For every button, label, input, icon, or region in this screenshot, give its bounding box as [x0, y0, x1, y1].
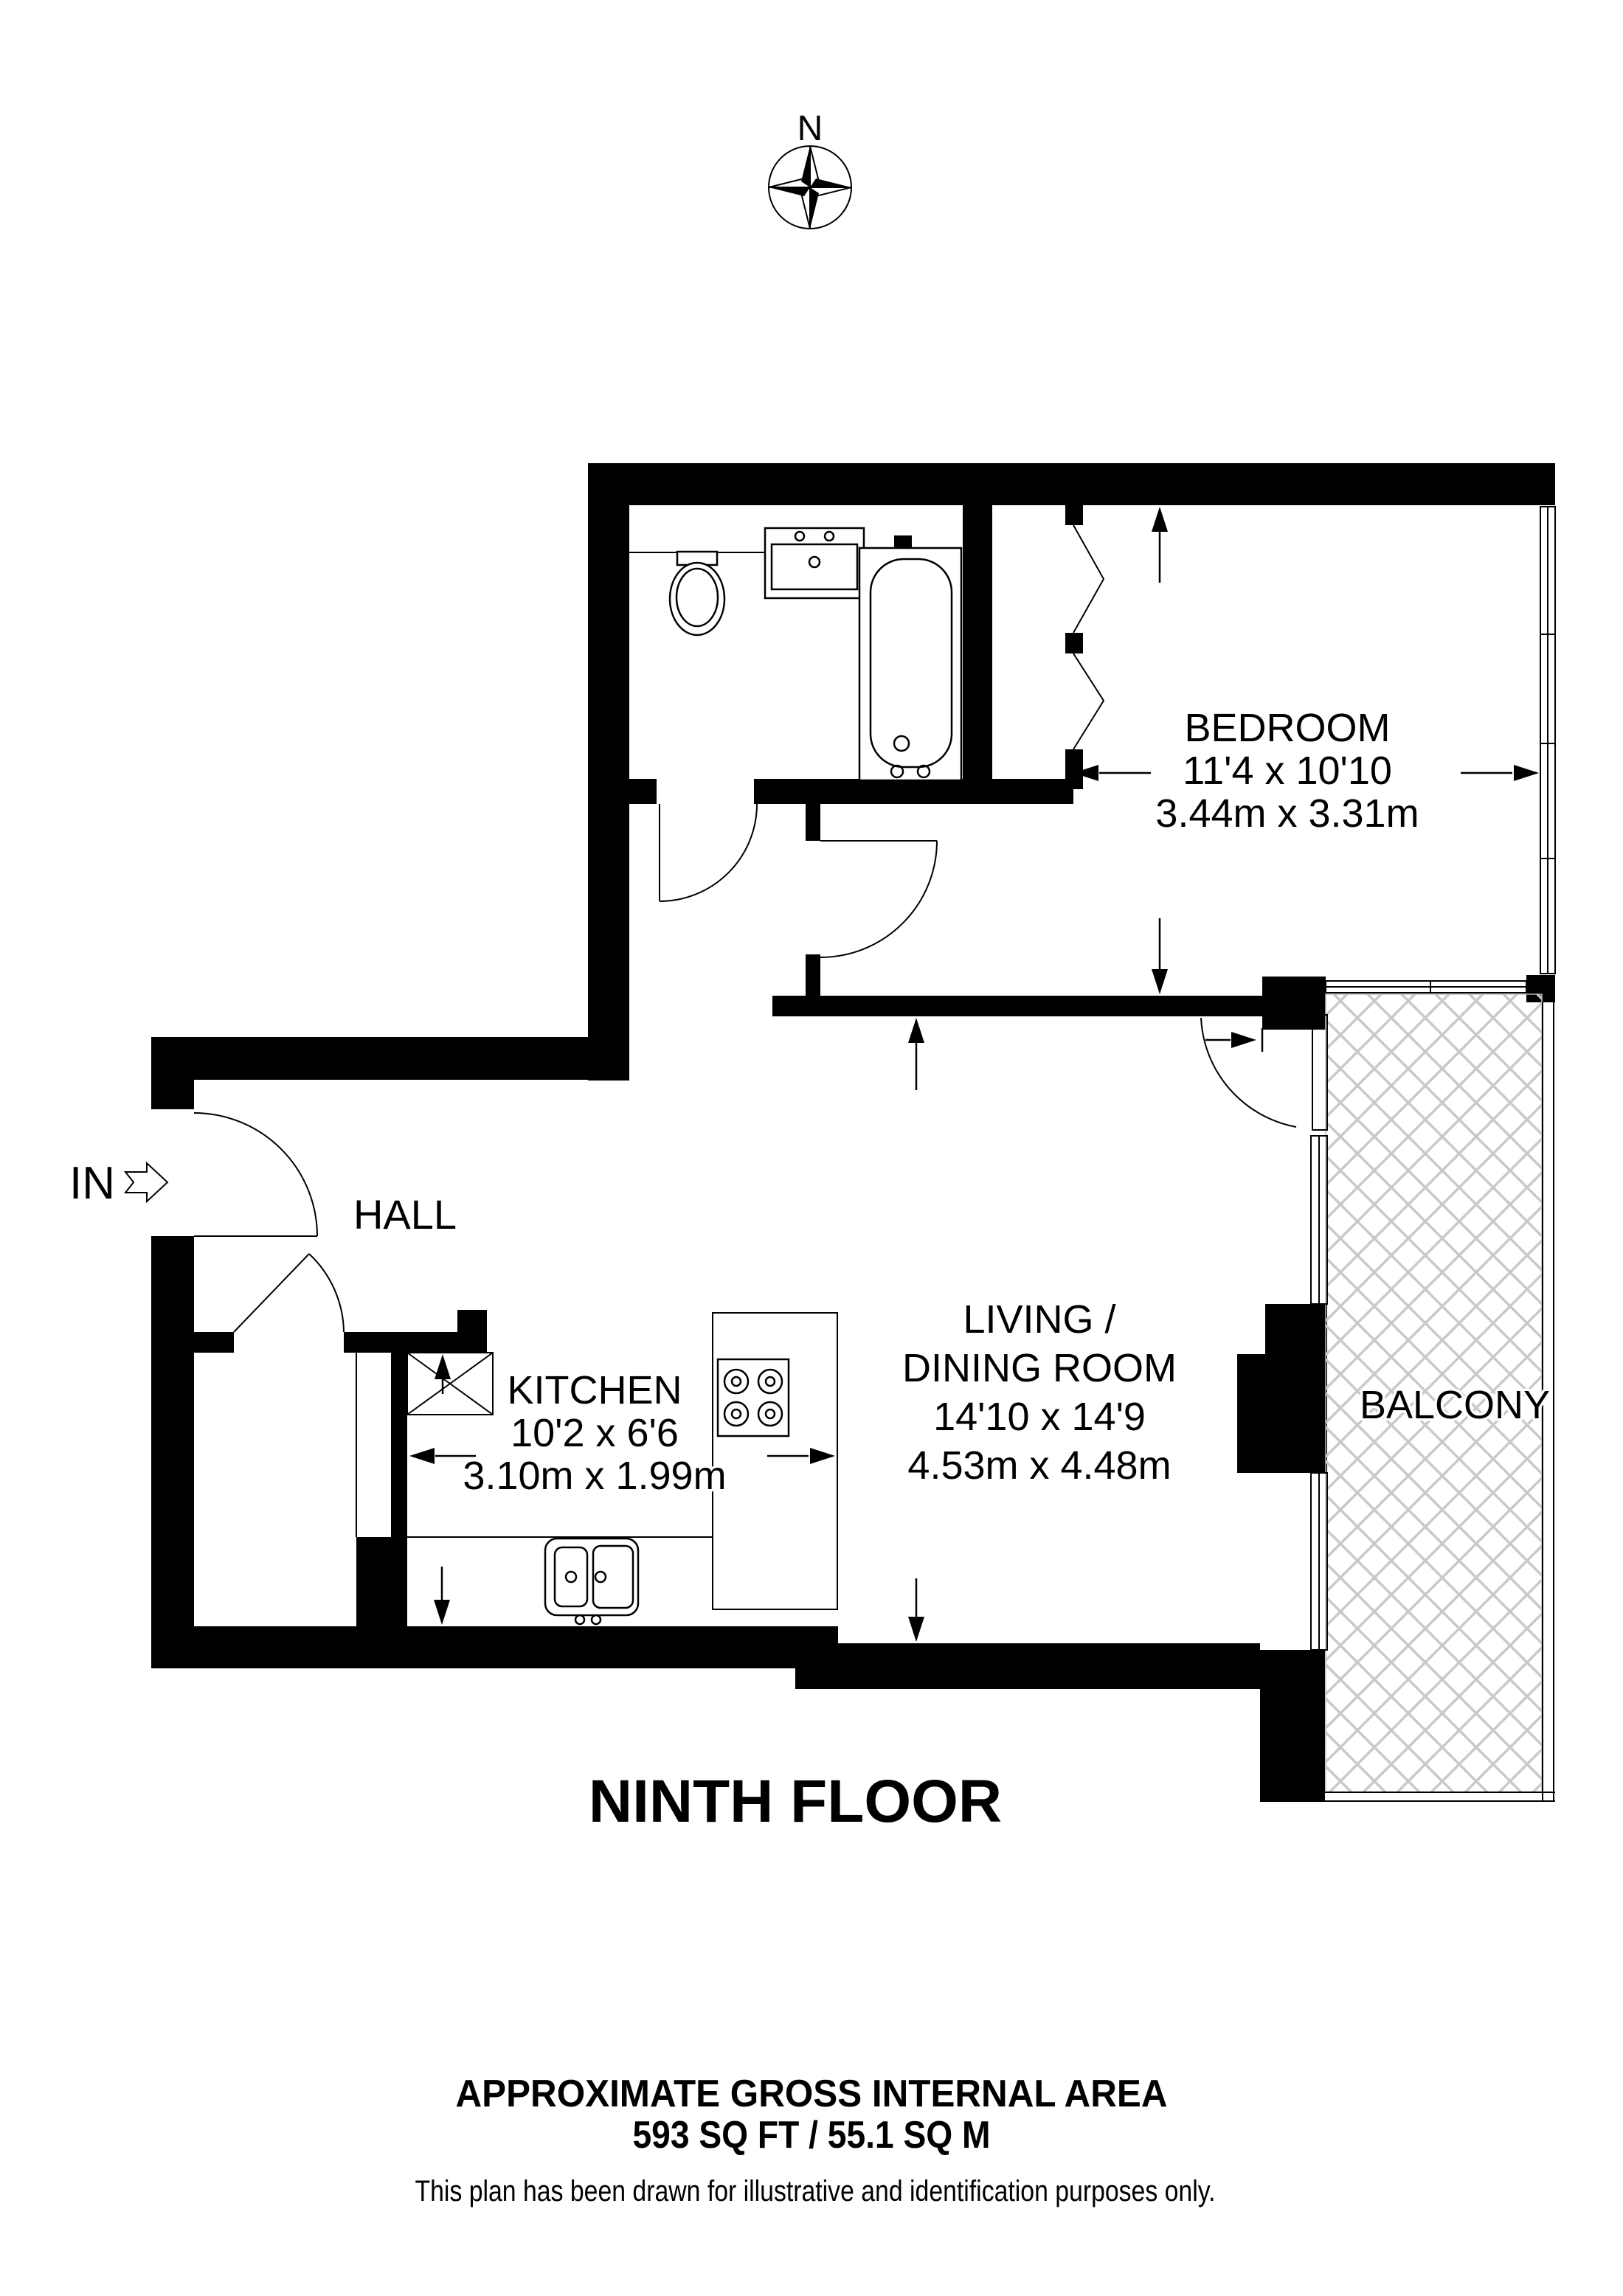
living-dim-up-arrow: [908, 1018, 924, 1090]
balcony-west-window-lower: [1311, 1473, 1327, 1650]
bathroom-door: [660, 804, 757, 901]
kitchen-dim-down-arrow: [434, 1567, 450, 1625]
floor-title: NINTH FLOOR: [589, 1768, 1002, 1835]
floorplan-canvas: N: [0, 0, 1623, 2296]
bathtub-icon: [859, 548, 961, 780]
living-dim-right-arrow: [1205, 1028, 1262, 1052]
bedroom-dims-imperial: 11'4 x 10'10: [1183, 749, 1392, 793]
entry-arrow-icon: [125, 1163, 167, 1201]
living-dim-down-arrow: [908, 1578, 924, 1642]
footer: NINTH FLOOR APPROXIMATE GROSS INTERNAL A…: [415, 1768, 1216, 2207]
kitchen-dim-up-arrow: [435, 1354, 451, 1394]
area-value: 593 SQ FT / 55.1 SQ M: [633, 2114, 991, 2157]
bedroom-dims-metric: 3.44m x 3.31m: [1155, 791, 1419, 836]
kitchen-sink-icon: [545, 1539, 638, 1624]
kitchen-door: [234, 1254, 344, 1332]
living-dims-metric: 4.53m x 4.48m: [907, 1443, 1171, 1488]
disclaimer-text: This plan has been drawn for illustrativ…: [415, 2175, 1216, 2207]
appliance-box-icon: [407, 1353, 493, 1415]
living-dims-imperial: 14'10 x 14'9: [933, 1395, 1146, 1439]
kitchen-dim-right-arrow: [767, 1448, 835, 1464]
bedroom-south-window: [1326, 981, 1526, 993]
balcony-south-railing: [1325, 1792, 1555, 1801]
compass-rose: N: [769, 109, 851, 229]
entry-label: IN: [69, 1158, 115, 1209]
area-heading: APPROXIMATE GROSS INTERNAL AREA: [456, 2073, 1168, 2115]
kitchen-dims-metric: 3.10m x 1.99m: [463, 1454, 726, 1498]
kitchen-label: KITCHEN: [507, 1368, 682, 1412]
kitchen-dims-imperial: 10'2 x 6'6: [511, 1411, 679, 1455]
living-label-line1: LIVING /: [963, 1297, 1115, 1342]
hall-label: HALL: [353, 1191, 457, 1238]
basin-icon: [765, 528, 864, 598]
bedroom-dim-left-arrow: [1073, 765, 1151, 781]
bedroom-dim-down-arrow: [1152, 918, 1168, 994]
bedroom-door: [820, 841, 937, 957]
balcony-west-window-upper: [1311, 1136, 1327, 1304]
bedroom-label: BEDROOM: [1184, 706, 1390, 750]
living-label-line2: DINING ROOM: [902, 1346, 1177, 1390]
bathroom-fixtures: [629, 528, 961, 780]
floorplan-page: N: [0, 0, 1623, 2296]
toilet-icon: [670, 552, 724, 635]
bedroom-dim-right-arrow: [1461, 765, 1539, 781]
hob-icon: [718, 1359, 789, 1436]
compass-north-label: N: [797, 109, 823, 148]
entry-door: [194, 1113, 317, 1236]
bedroom-dim-up-arrow: [1152, 507, 1168, 583]
balcony-label: BALCONY: [1360, 1383, 1550, 1427]
balcony-door: [1201, 1015, 1327, 1130]
bedroom-east-window: [1540, 507, 1555, 974]
